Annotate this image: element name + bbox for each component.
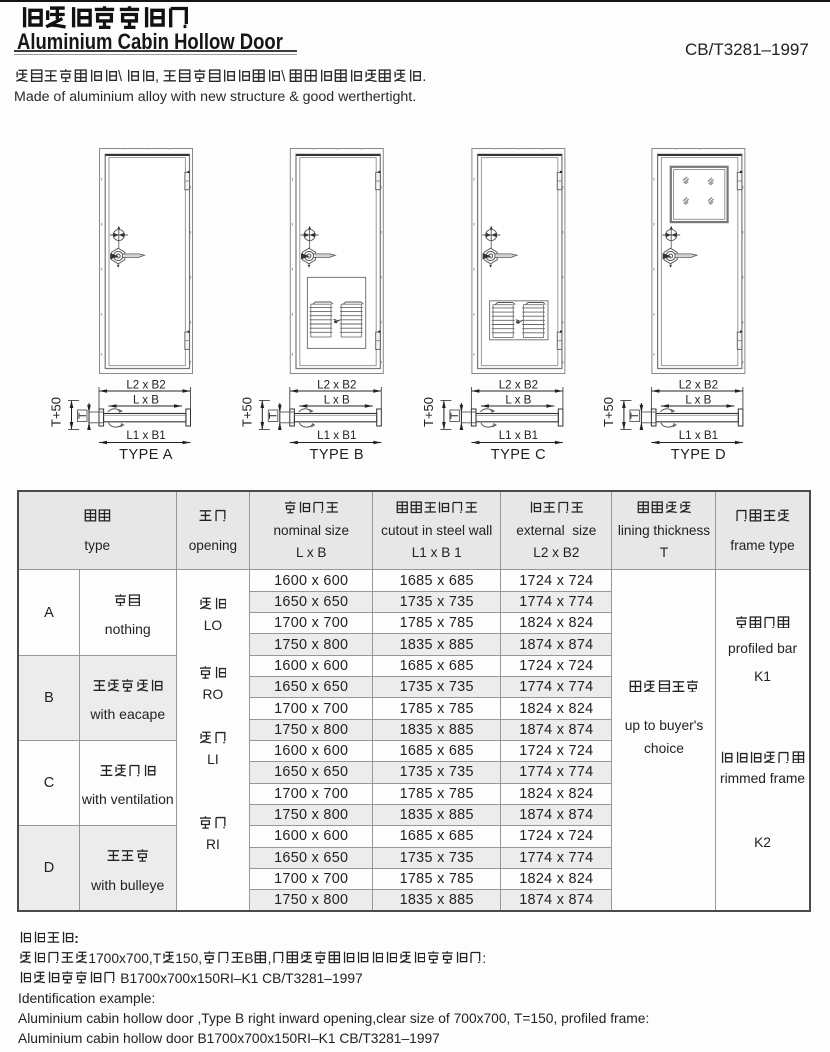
svg-text:L1 x B1: L1 x B1 [679,429,718,442]
svg-text:L x B: L x B [505,393,531,406]
svg-text:L1 x B1: L1 x B1 [126,429,165,442]
svg-text:L x B: L x B [685,393,711,406]
svg-text:L1 x B1: L1 x B1 [499,429,538,442]
svg-text:TYPE C: TYPE C [491,447,546,463]
svg-text:L2 x B2: L2 x B2 [317,378,356,391]
svg-text:L x B: L x B [133,393,159,406]
svg-text:L2 x B2: L2 x B2 [126,378,165,391]
svg-text:T: T [629,412,641,419]
svg-text:T: T [268,412,280,419]
svg-text:T+50: T+50 [49,397,64,427]
svg-text:T+50: T+50 [239,397,254,427]
svg-text:T+50: T+50 [421,397,436,427]
svg-text:TYPE A: TYPE A [119,447,173,463]
svg-text:TYPE D: TYPE D [671,447,726,463]
svg-text:L x B: L x B [324,393,350,406]
svg-text:T: T [449,412,461,419]
svg-text:T: T [77,412,89,419]
svg-text:TYPE B: TYPE B [310,447,365,463]
svg-text:L1 x B1: L1 x B1 [317,429,356,442]
svg-text:T+50: T+50 [601,397,616,427]
svg-text:L2 x B2: L2 x B2 [499,378,538,391]
svg-text:L2 x B2: L2 x B2 [679,378,718,391]
